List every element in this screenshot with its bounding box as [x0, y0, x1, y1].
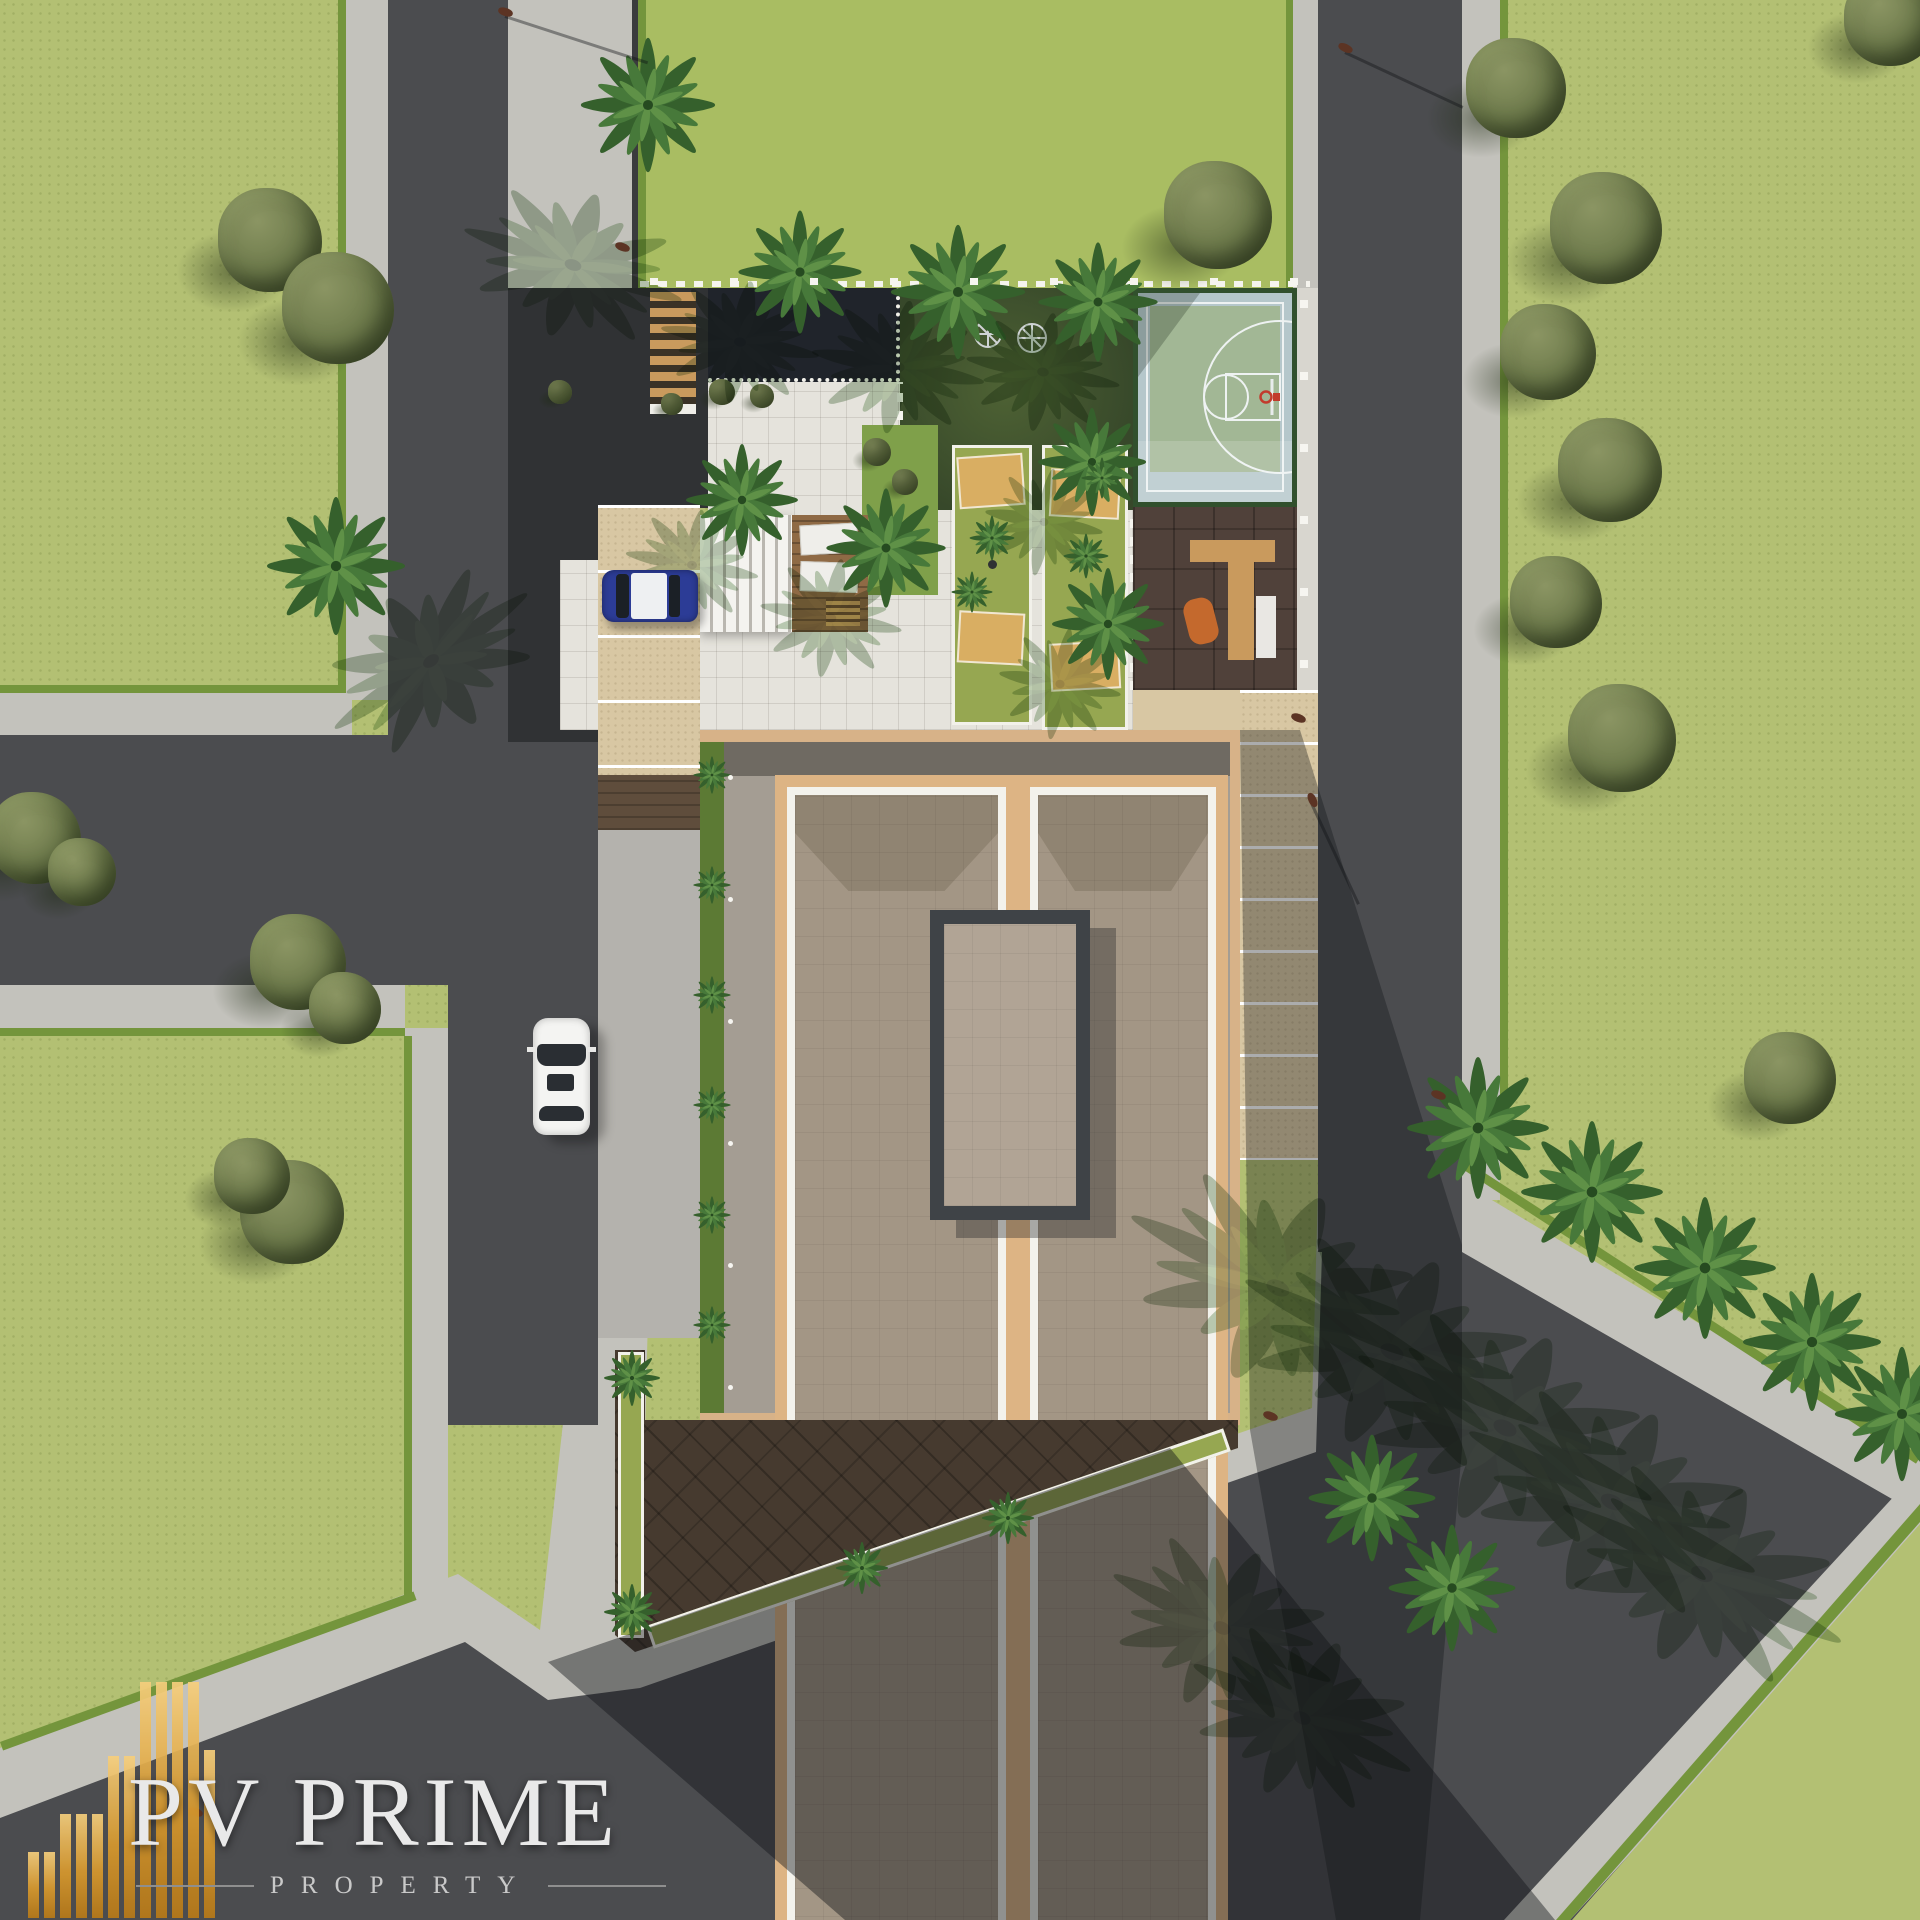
wall-post	[650, 278, 658, 285]
walkway-light	[728, 775, 733, 780]
walkway-light	[728, 1263, 733, 1268]
street-lamp	[1290, 712, 1307, 725]
street-lamp	[614, 241, 631, 254]
logo-tower-bar	[60, 1814, 71, 1918]
court-wall-post	[1300, 660, 1308, 668]
court-wall-post	[1300, 300, 1308, 308]
walkway-light	[728, 1141, 733, 1146]
lamp-pole-shadow	[1311, 804, 1360, 905]
brand-tagline: PROPERTY	[270, 1872, 532, 1900]
wall-post	[1290, 278, 1298, 285]
wall-post	[1050, 278, 1058, 285]
court-wall-post	[1300, 588, 1308, 596]
wall-post	[970, 278, 978, 285]
brand-tagline-row: PROPERTY	[136, 1872, 666, 1900]
logo-tower-bar	[92, 1814, 103, 1918]
tagline-rule-right	[548, 1885, 666, 1887]
wall-post	[1130, 278, 1138, 285]
street-lamp	[1430, 1089, 1447, 1102]
logo-tower-bar	[76, 1814, 87, 1918]
wall-post	[890, 278, 898, 285]
brand-wordmark: PV PRIME	[128, 1756, 620, 1869]
walkway-light	[728, 1019, 733, 1024]
lamp-pole-shadow	[1344, 51, 1463, 109]
court-wall-post	[1300, 516, 1308, 524]
street-lamp	[1337, 41, 1354, 55]
street-lamp	[1262, 1410, 1279, 1423]
street-lamp	[1306, 792, 1320, 809]
logo-tower-bar	[44, 1852, 55, 1918]
wall-post	[810, 278, 818, 285]
court-wall-post	[1300, 372, 1308, 380]
lamp-pole-shadow	[505, 15, 649, 64]
logo-tower-bar	[108, 1756, 119, 1918]
wall-post	[1210, 278, 1218, 285]
wall-post	[730, 278, 738, 285]
walkway-light	[728, 897, 733, 902]
logo-tower-bar	[28, 1852, 39, 1918]
street-fixtures-layer	[0, 0, 1920, 1920]
tagline-rule-left	[136, 1885, 254, 1887]
aerial-site-render: PV PRIME PROPERTY	[0, 0, 1920, 1920]
walkway-light	[728, 1385, 733, 1390]
court-wall-post	[1300, 444, 1308, 452]
